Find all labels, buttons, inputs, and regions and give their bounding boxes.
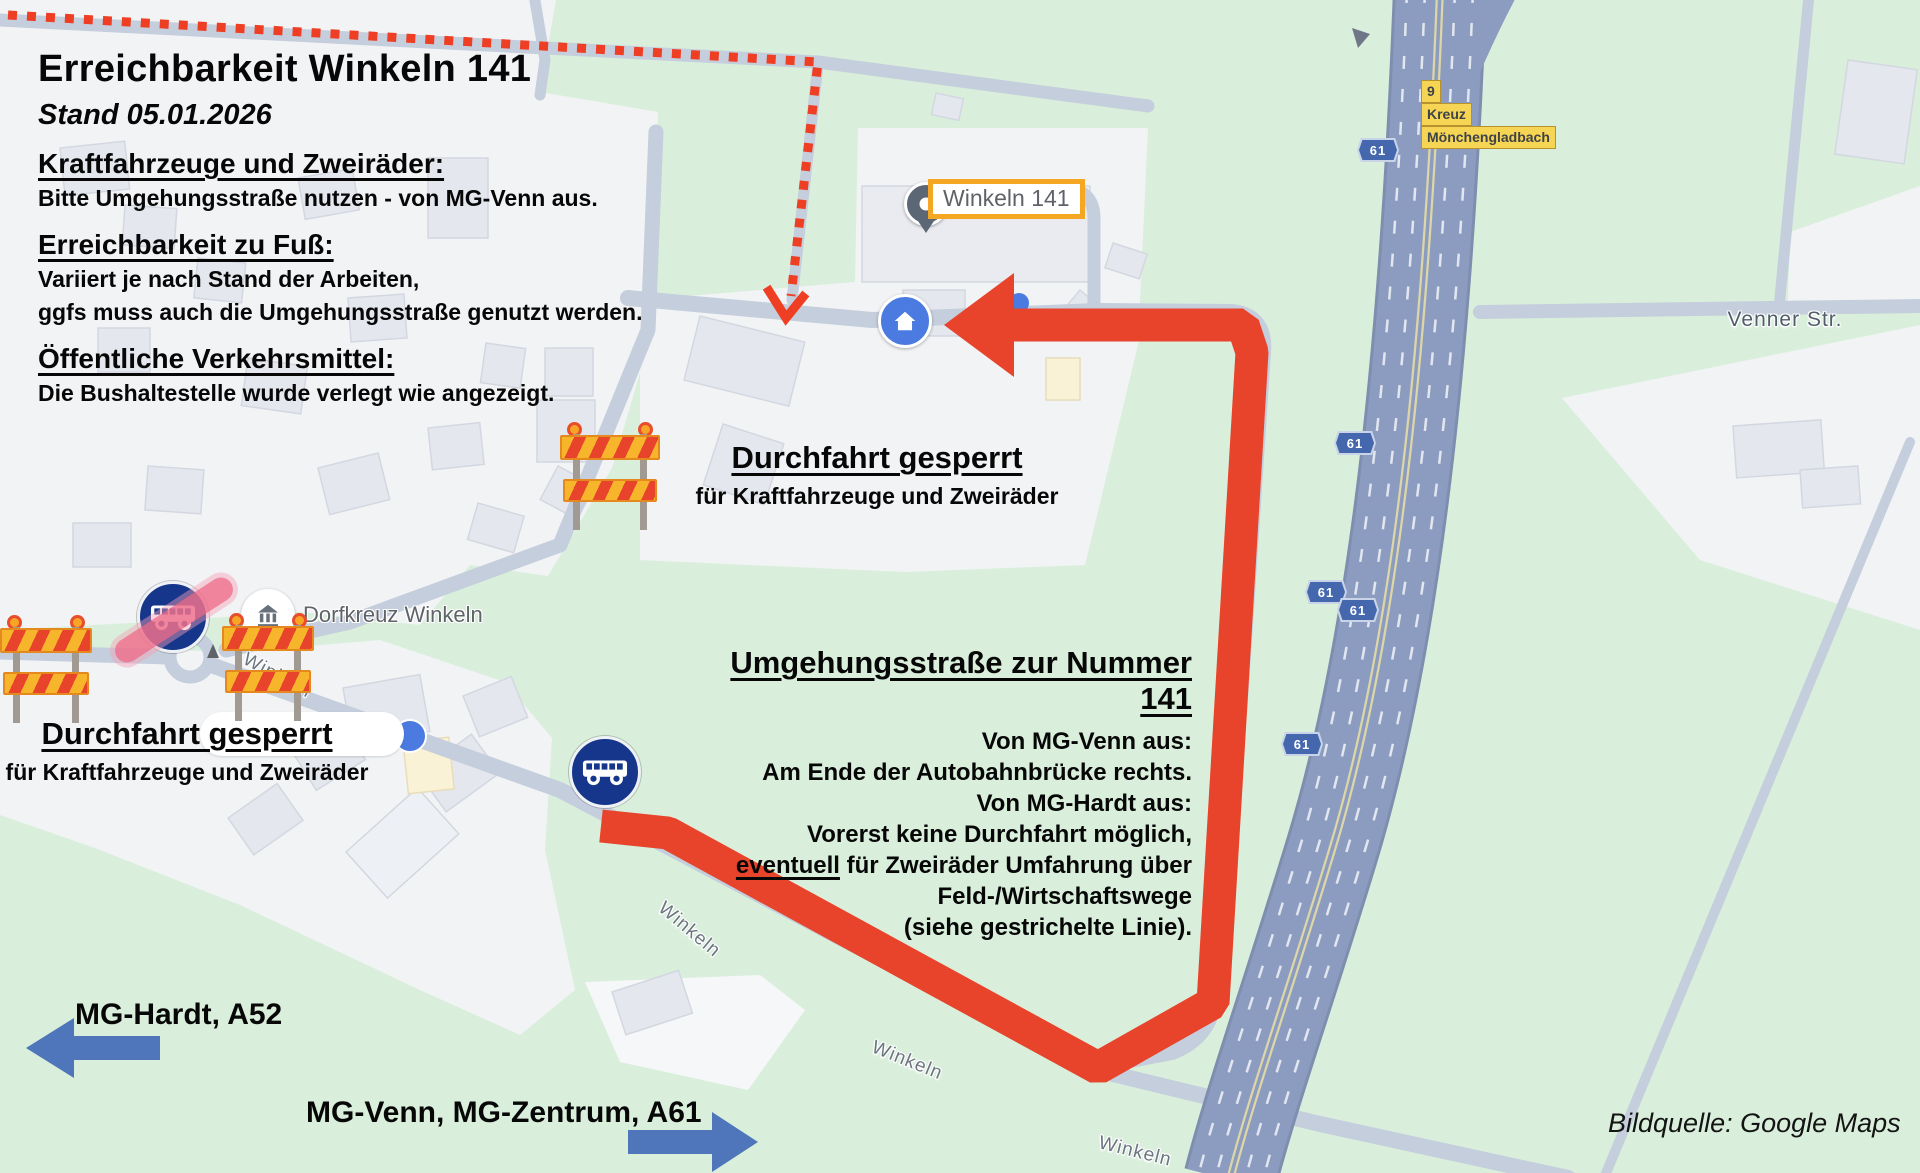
exit-sign-line1: Kreuz (1421, 103, 1472, 126)
motorway-shield-badge: 61 (1357, 138, 1399, 162)
barrier-rail (0, 628, 92, 653)
detour-line: Von MG-Hardt aus: (676, 788, 1192, 819)
closure-subtitle: für Kraftfahrzeuge und Zweiräder (0, 759, 374, 786)
exit-sign-line2: Mönchengladbach (1421, 126, 1556, 149)
motorway-shield: 61 (1339, 600, 1377, 620)
section-heading-foot: Erreichbarkeit zu Fuß: (38, 229, 642, 261)
motorway-shield: 61 (1336, 433, 1374, 453)
closure-note-west: Durchfahrt gesperrt für Kraftfahrzeuge u… (0, 716, 374, 786)
barrier-rail (225, 670, 311, 693)
section-heading-transit: Öffentliche Verkehrsmittel: (38, 343, 642, 375)
section-line: Die Bushaltestelle wurde verlegt wie ang… (38, 379, 642, 408)
motorway-shield-badge: 61 (1337, 598, 1379, 622)
motorway-shield: 61 (1283, 734, 1321, 754)
closure-subtitle: für Kraftfahrzeuge und Zweiräder (652, 483, 1102, 510)
status-date: Stand 05.01.2026 (38, 99, 642, 132)
direction-label-west: MG-Hardt, A52 (75, 998, 282, 1032)
detour-line: (siehe gestrichelte Linie). (676, 912, 1192, 943)
image-source-credit: Bildquelle: Google Maps (1608, 1108, 1901, 1139)
motorway-direction-arrow (1352, 28, 1370, 48)
info-panel: Erreichbarkeit Winkeln 141 Stand 05.01.2… (38, 48, 642, 408)
emphasized-word: eventuell (736, 852, 840, 879)
roadblock-barrier-icon (222, 613, 314, 721)
dorfkreuz-label: Dorfkreuz Winkeln (303, 602, 483, 628)
closure-note-center: Durchfahrt gesperrt für Kraftfahrzeuge u… (652, 440, 1102, 510)
detour-line: Feld-/Wirtschaftswege (676, 881, 1192, 912)
detour-heading: Umgehungsstraße zur Nummer 141 (676, 645, 1192, 717)
street-label-venner: Venner Str. (1728, 308, 1843, 332)
section-line: Variiert je nach Stand der Arbeiten, (38, 265, 642, 294)
section-line: ggfs muss auch die Umgehungsstraße genut… (38, 298, 642, 327)
direction-label-southeast: MG-Venn, MG-Zentrum, A61 (306, 1096, 702, 1130)
detour-line: eventuell für Zweiräder Umfahrung über (676, 850, 1192, 881)
detour-line: Am Ende der Autobahnbrücke rechts. (676, 757, 1192, 788)
infographic-stage: 61 61 61 61 61 9 Kreuz Mönchengladbach W… (0, 0, 1920, 1173)
detour-line: Vorerst keine Durchfahrt möglich, (676, 819, 1192, 850)
barrier-rail (3, 672, 89, 695)
bus-icon (582, 756, 628, 788)
roadblock-barrier-icon (0, 615, 92, 723)
motorway-shield-badge: 61 (1334, 431, 1376, 455)
home-icon (878, 294, 932, 348)
motorway-shield: 61 (1359, 140, 1397, 160)
detour-line-rest: für Zweiräder Umfahrung über (840, 852, 1192, 879)
exit-sign-kreuz-moenchengladbach: 9 Kreuz Mönchengladbach (1421, 80, 1556, 149)
roadblock-barrier-icon (560, 422, 660, 530)
bus-lane-sign (569, 736, 641, 808)
motorway-shield-badge: 61 (1281, 732, 1323, 756)
page-title: Erreichbarkeit Winkeln 141 (38, 48, 642, 91)
section-line: Bitte Umgehungsstraße nutzen - von MG-Ve… (38, 184, 642, 213)
closure-title: Durchfahrt gesperrt (652, 440, 1102, 476)
exit-sign-number: 9 (1421, 80, 1441, 103)
barrier-rail (563, 479, 657, 502)
barrier-rail (222, 626, 314, 651)
barrier-rail (560, 435, 660, 460)
bus-lane-sign-crossed (137, 581, 209, 653)
house-glyph (892, 308, 918, 334)
detour-note: Umgehungsstraße zur Nummer 141 Von MG-Ve… (676, 645, 1192, 943)
detour-line: Von MG-Venn aus: (676, 726, 1192, 757)
motorway-shield: 61 (1307, 582, 1345, 602)
closure-title: Durchfahrt gesperrt (0, 716, 374, 752)
winkeln141-label: Winkeln 141 (928, 179, 1085, 219)
section-heading-vehicles: Kraftfahrzeuge und Zweiräder: (38, 148, 642, 180)
road-direction-arrow (207, 644, 219, 658)
